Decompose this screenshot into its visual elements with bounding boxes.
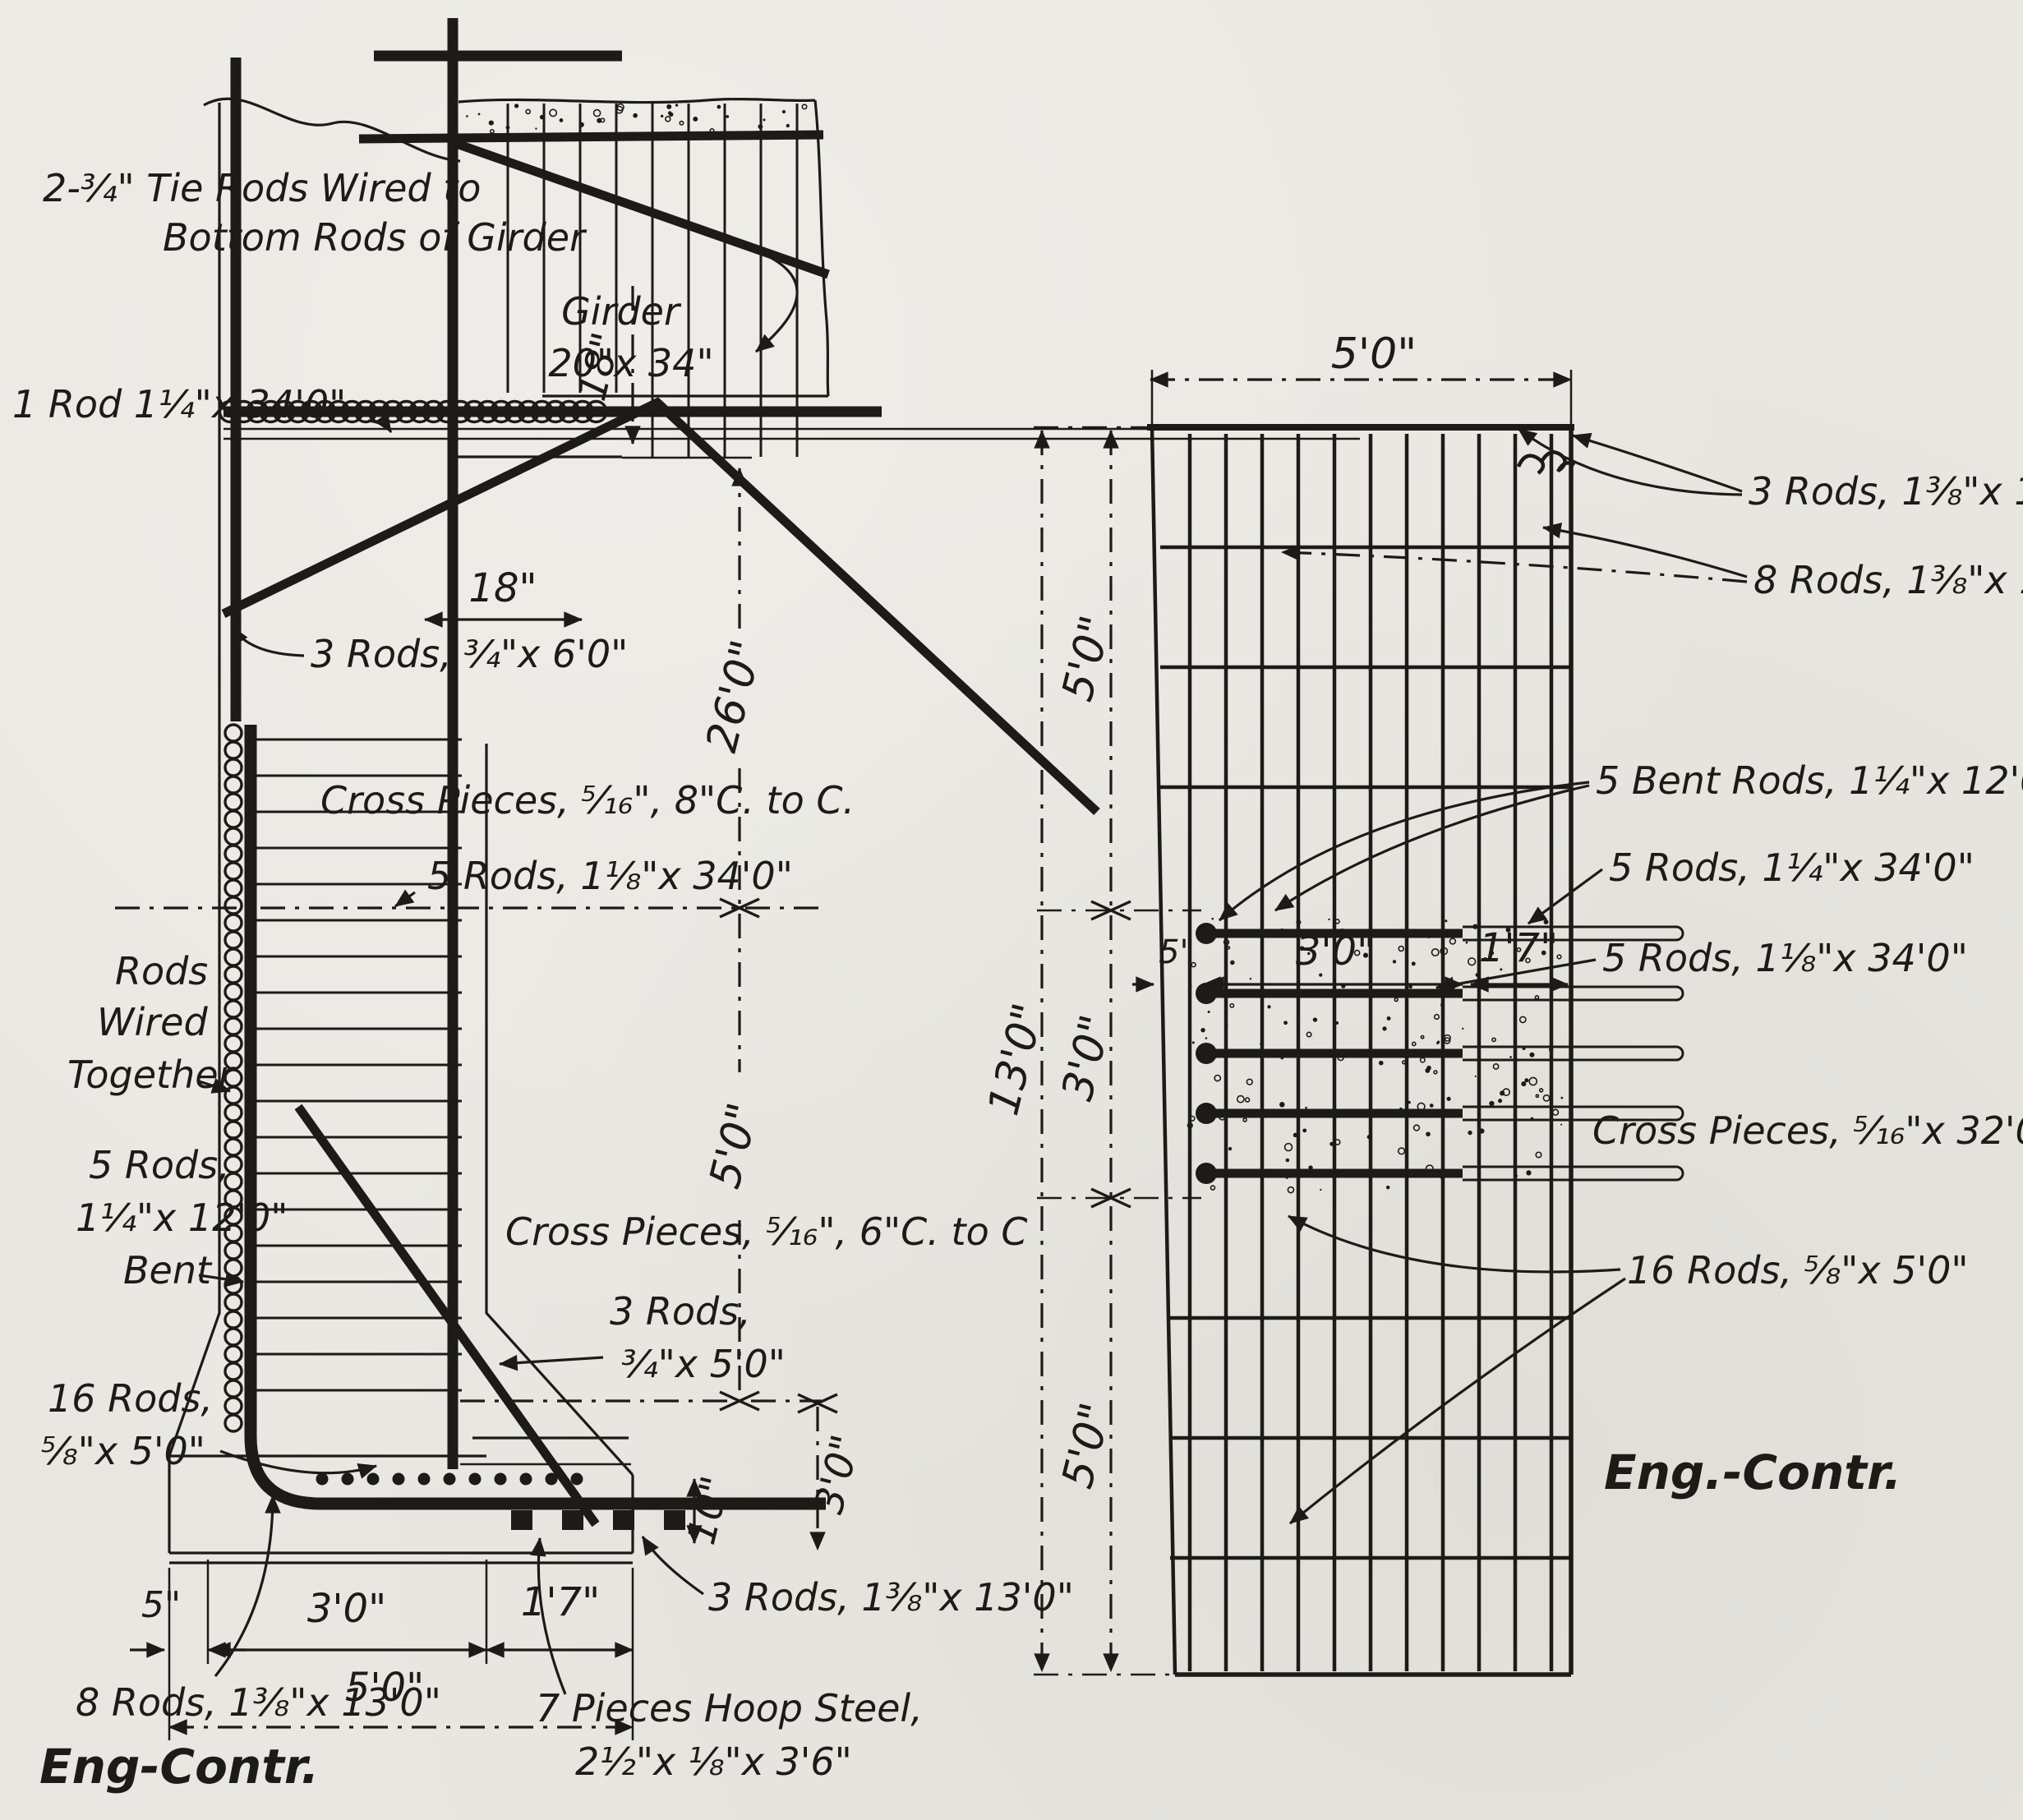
stipple-ring [1247,1079,1252,1085]
credit-left: Eng-Contr. [39,1739,319,1795]
chain-loop [225,880,242,896]
stipple-ring [1435,1015,1440,1020]
stipple-ring [1285,1144,1293,1151]
chain-loop [225,1380,242,1397]
stipple-dot [669,113,673,117]
stipple-ring [526,109,530,113]
stipple-dot [1279,1102,1285,1108]
label-wired-2: Wired [97,1000,208,1044]
stipple-ring [1468,958,1476,965]
stipple-dot [1320,1189,1321,1191]
chain-loop [225,1311,242,1328]
stipple-dot [1466,942,1468,944]
rod-hook [1518,456,1543,473]
left-figure: 2-¾" Tie Rods Wired to Bottom Rods of Gi… [12,18,1360,1795]
stipple-ring [1412,1042,1416,1045]
stipple-dot [1462,1028,1463,1030]
dimension-cross-marks [720,899,1131,1412]
stipple-dot [675,104,678,106]
stipple-dot [763,118,766,121]
leader-5rods114 [1528,869,1602,924]
r-label-16rods: 16 Rods, ⅝"x 5'0" [1627,1248,1969,1292]
dim-18v: 18" [569,328,629,405]
chain-loop [225,759,242,776]
stipple-dot [1524,1078,1528,1082]
chain-loop [225,725,242,741]
leader-tie-rods [756,256,797,352]
leader-16rods-b [1290,1279,1625,1523]
hoop-tooth [613,1510,634,1530]
stipple-ring [1237,1096,1244,1103]
rod-end-dot [495,1473,507,1486]
leader-16rods [220,1451,376,1473]
right-figure: 3 Rods, 1⅜"x 13'0" 8 Rods, 1⅜"x 13'0" 5 … [979,329,2023,1675]
rod-end-dot [520,1473,532,1486]
stipple-dot [717,105,721,109]
label-cross6: Cross Pieces, ⁵⁄₁₆", 6"C. to C [505,1209,1027,1254]
stipple-dot [1560,1097,1563,1099]
chain-loop [225,845,242,862]
stipple-ring [1394,998,1398,1002]
stipple-ring [1399,1148,1405,1154]
stipple-ring [1529,1077,1537,1085]
stipple-dot [1200,1028,1205,1032]
r-label-5rods114: 5 Rods, 1¼"x 34'0" [1609,845,1975,890]
right-labels: 3 Rods, 1⅜"x 13'0" 8 Rods, 1⅜"x 13'0" 5 … [979,329,2023,1500]
stipple-dot [1286,1159,1290,1163]
dim-26: 26'0" [697,635,772,757]
hoop-tooth [511,1510,532,1530]
stipple-ring [1434,1071,1437,1074]
chain-loop [225,915,242,931]
chain-loop [225,1329,242,1345]
leader-5bent-b [1275,786,1589,910]
stipple-dot [1205,1037,1208,1039]
stipple-dot [782,110,786,113]
stipple-ring [1449,938,1455,944]
stipple-dot [1468,1131,1472,1135]
lower-diagonal-rod [298,1107,596,1524]
dim-b3ft: 3'0" [307,1586,386,1632]
stipple-ring [1243,1118,1247,1122]
stipple-dot [1526,1170,1531,1175]
stipple-dot [506,126,510,130]
stipple-dot [579,122,584,127]
rod-end-dot [571,1473,583,1486]
stipple-dot [1498,1099,1502,1103]
stipple-ring [1540,1089,1543,1092]
stipple-ring [1493,1064,1498,1069]
stipple-dot [1393,960,1396,963]
stipple-dot [1379,1061,1384,1066]
stipple-ring [1414,1125,1420,1131]
leader-8rods-a [1543,528,1747,577]
dim-3ft: 3'0" [806,1431,870,1518]
rod-end-dot [444,1473,456,1486]
stipple-ring [594,110,601,117]
chain-loop [225,1260,242,1276]
label-3rods5-1: 3 Rods, [610,1289,751,1334]
r-label-5bent: 5 Bent Rods, 1¼"x 12'0" [1596,758,2023,803]
label-bent-3: Bent [123,1248,213,1292]
stipple-dot [1313,1017,1317,1021]
girder-right-edge [815,100,828,396]
label-3rods5-2: ¾"x 5'0" [621,1342,786,1386]
stipple-dot [693,117,698,122]
label-cross8: Cross Pieces, ⁵⁄₁₆", 8"C. to C. [320,778,855,822]
label-3rods6: 3 Rods, ¾"x 6'0" [311,632,628,676]
stipple-dot [1302,1128,1306,1132]
bent-tie-rod [223,403,1097,812]
footing-rod-dots [316,1473,583,1486]
stipple-dot [1305,1107,1307,1109]
stipple-dot [661,115,663,117]
chain-loop [225,776,242,793]
stipple-ring [1399,947,1403,951]
stipple-dot [786,124,790,127]
stipple-ring [802,104,806,108]
label-16rods-1: 16 Rods, [48,1376,213,1421]
stipple-dot [1228,1147,1232,1150]
r-dim-c3: 3'0" [1296,928,1375,975]
credit-right: Eng.-Contr. [1604,1444,1901,1500]
r-dim-c17: 1'7" [1479,925,1558,971]
stipple-ring [1230,1004,1233,1007]
stipple-dot [726,115,729,118]
r-dim-top5: 5'0" [1331,329,1417,379]
stipple-ring [1421,1036,1423,1039]
rod-end-dot [546,1473,558,1486]
chain-loop [225,1415,242,1431]
stipple-dot [535,127,537,129]
chain-loop [225,1363,242,1380]
r-dim-3: 3'0" [1053,1010,1121,1105]
stipple-ring [1535,996,1538,999]
stipple-dot [1560,1124,1562,1126]
stipple-dot [1544,919,1549,924]
stipple-dot [1475,1076,1477,1077]
label-wired-3: Together [67,1053,237,1097]
chain-loop [225,1122,242,1138]
stipple-ring [1306,1032,1311,1036]
leader-3rods5 [500,1357,603,1364]
stipple-dot [1230,961,1235,965]
stipple-ring [680,122,683,125]
r-label-8rods: 8 Rods, 1⅜"x 13'0" [1753,558,2023,602]
label-tie-rods-1: 2-¾" Tie Rods Wired to [43,166,481,210]
chain-loop [225,828,242,845]
r-label-3rods: 3 Rods, 1⅜"x 13'0" [1749,469,2023,514]
stipple-dot [1426,1066,1431,1071]
stipple-ring [1431,949,1438,956]
chain-loop [225,863,242,879]
leader-5rods118 [395,892,415,906]
stipple-ring [1421,1057,1425,1062]
stipple-dot [1208,1011,1210,1013]
label-16rods-2: ⅝"x 5'0" [41,1429,205,1473]
dim-b5ft: 5'0" [345,1665,424,1711]
r-dim-5b: 5'0" [1053,1398,1121,1493]
dim-10: 10" [678,1472,739,1549]
concrete-stipple-slab [466,104,807,133]
stipple-ring [1288,1187,1293,1193]
rod-end-dot [469,1473,482,1486]
stipple-dot [1521,1081,1526,1086]
stipple-dot [540,115,545,120]
label-wired-1: Rods [115,949,208,993]
top-corner-hooks [1518,452,1574,473]
chain-loop [225,1104,242,1121]
stipple-ring [1210,1186,1214,1190]
stipple-dot [1192,1041,1195,1044]
label-bent-2: 1¼"x 12'0" [76,1196,288,1240]
rod-end-dot [418,1473,431,1486]
chain-loop [225,1242,242,1259]
stipple-dot [1250,978,1251,979]
r-label-5rods118: 5 Rods, 1⅛"x 34'0" [1602,936,1968,980]
label-tie-rods-2: Bottom Rods of Girder [163,215,588,260]
r-label-cross32: Cross Pieces, ⁵⁄₁₆"x 32'0" [1592,1108,2023,1153]
label-rod134: 1 Rod 1¼"x 34'0" [12,382,346,426]
chain-loop [225,1294,242,1311]
stipple-dot [514,104,518,108]
chain-loop [225,811,242,827]
stipple-dot [1447,1097,1451,1101]
stipple-dot [1500,1090,1505,1095]
chain-loop [225,984,242,1000]
chain-loop [225,1346,242,1362]
rod-end-dot [367,1473,380,1486]
chain-loop [225,1001,242,1017]
rod-end-dot [316,1473,329,1486]
chain-loop [225,932,242,948]
wall-left-edge [1152,427,1175,1675]
label-hoop-1: 7 Pieces Hoop Steel, [536,1686,923,1730]
chain-loop [225,1018,242,1034]
chain-loop [225,1035,242,1052]
leader-5bent-a [1219,782,1589,920]
leader-rod134 [368,421,391,432]
leader-3rods13 [643,1537,703,1594]
label-girder-1: Girder [561,289,682,334]
stipple-dot [633,113,638,118]
stipple-dot [1445,919,1447,922]
stipple-dot [1211,918,1214,920]
hoop-tooth [562,1510,583,1530]
chain-loop [225,1398,242,1414]
stipple-dot [1387,1016,1391,1021]
label-5rods118: 5 Rods, 1⅛"x 34'0" [427,854,793,898]
dim-5ft: 5'0" [700,1098,768,1193]
stipple-dot [1436,1042,1439,1044]
r-dim-13: 13'0" [979,998,1053,1120]
stipple-ring [1536,1152,1541,1158]
stipple-ring [1536,1094,1538,1097]
stipple-ring [1246,1098,1250,1102]
stipple-dot [1382,1026,1386,1030]
rod-end-dot [342,1473,354,1486]
stipple-ring [666,117,670,122]
stipple-dot [1412,961,1416,965]
break-wavy-line [204,99,460,161]
stipple-dot [597,118,601,123]
leader-3rods6 [232,626,304,656]
stipple-dot [1283,1021,1288,1025]
blueprint-canvas: 2-¾" Tie Rods Wired to Bottom Rods of Gi… [0,0,2023,1820]
drawing-sheet: 2-¾" Tie Rods Wired to Bottom Rods of Gi… [0,0,2023,1820]
stipple-dot [1509,1056,1512,1058]
stipple-dot [1430,1104,1434,1108]
label-bent-1: 5 Rods, [89,1143,230,1187]
stipple-dot [1267,1005,1270,1008]
chain-loop [225,897,242,914]
stipple-dot [1386,1186,1389,1189]
stipple-dot [466,115,468,117]
stipple-ring [1214,1075,1220,1080]
stipple-dot [1426,1131,1431,1136]
stipple-ring [1520,1016,1526,1022]
stipple-dot [758,124,763,129]
r-dim-c5: 5" [1159,933,1195,971]
slab-tie-bar [359,135,823,139]
stipple-dot [560,118,564,122]
stipple-ring [1543,1095,1549,1101]
label-hoop-2: 2½"x ⅛"x 3'6" [575,1739,852,1784]
stipple-dot [666,104,671,109]
leader-3rods-a [1573,435,1742,491]
stipple-dot [1529,1053,1534,1057]
chain-loop [225,966,242,983]
stipple-ring [491,130,494,133]
chain-loop [225,742,242,758]
stipple-dot [1489,1101,1494,1106]
rod-end-dot [393,1473,405,1486]
dim-5in: 5" [141,1584,181,1626]
dim-b17: 1'7" [521,1579,600,1625]
stipple-dot [1328,919,1329,920]
dim-18h: 18" [468,565,537,611]
label-3rods13: 3 Rods, 1⅜"x 13'0" [708,1575,1074,1620]
stipple-ring [710,129,714,133]
stipple-ring [1553,1109,1559,1115]
chain-loop [225,949,242,965]
chain-loop [225,794,242,810]
stipple-ring [550,109,556,116]
stipple-dot [478,113,481,115]
slab-top-edge [459,99,815,103]
stipple-dot [489,120,494,125]
stipple-ring [1492,1038,1495,1041]
